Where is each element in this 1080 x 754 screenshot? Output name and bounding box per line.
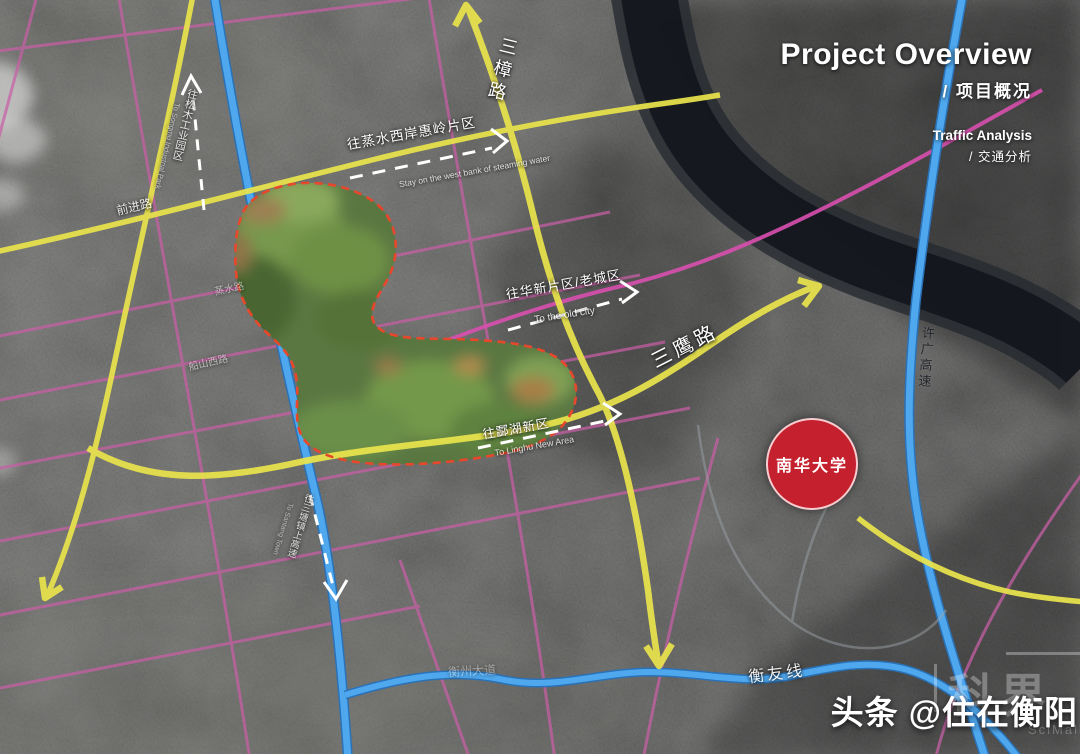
bracket-icon (1006, 652, 1080, 655)
road-label-hengzhou: 衡州大道 (448, 661, 497, 680)
university-badge-label: 南华大学 (776, 452, 848, 476)
toutiao-watermark: 头条 @住在衡阳 (831, 686, 1078, 734)
title-block: Project Overview / 项目概况 Traffic Analysis… (781, 38, 1032, 165)
slide-canvas: 三樟路 三鹰路 前进路 许广高速 衡友线 衡州大道 蒸水路 船山西路 往蒸水西岸… (0, 0, 1080, 754)
section-subtitle: Traffic Analysis (781, 128, 1032, 143)
page-title: Project Overview (781, 38, 1032, 72)
university-badge: 南华大学 (766, 418, 858, 510)
page-title-zh: / 项目概况 (781, 77, 1032, 102)
section-subtitle-zh: / 交通分析 (781, 146, 1032, 165)
